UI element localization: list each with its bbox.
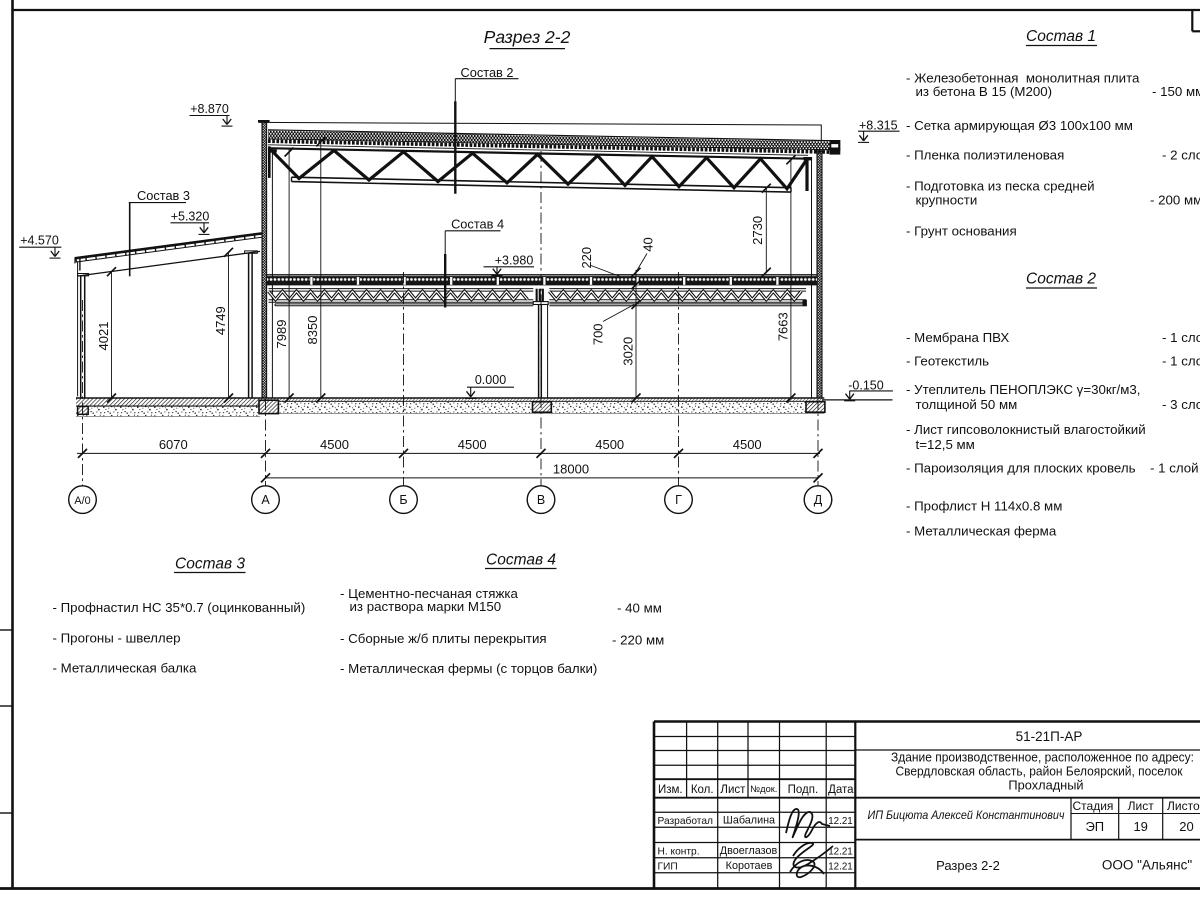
svg-text:Лист: Лист [1128, 799, 1155, 813]
svg-text:- Железобетонная монолитная п: - Железобетонная монолитная плита [906, 70, 1140, 85]
svg-text:Свердловская область, район Бе: Свердловская область, район Белоярский, … [896, 764, 1183, 779]
svg-text:- Металлическая ферма: - Металлическая ферма [906, 524, 1057, 539]
svg-text:Н. контр.: Н. контр. [658, 847, 700, 858]
svg-text:- Пароизоляция для плоских кро: - Пароизоляция для плоских кровель [906, 461, 1136, 476]
svg-text:Состав 2: Состав 2 [1026, 271, 1096, 288]
svg-text:- Сборные ж/б плиты перекрытия: - Сборные ж/б плиты перекрытия [340, 631, 547, 646]
svg-text:Состав 1: Состав 1 [1026, 28, 1096, 45]
svg-text:- Металлическая балка: - Металлическая балка [53, 661, 198, 676]
svg-text:Коротаев: Коротаев [726, 860, 773, 872]
svg-text:+3.980: +3.980 [495, 253, 534, 267]
svg-text:4500: 4500 [595, 437, 624, 452]
svg-text:Прохладный: Прохладный [1008, 778, 1083, 793]
svg-text:А: А [261, 493, 270, 507]
svg-text:А/0: А/0 [74, 495, 90, 507]
svg-text:Двоеглазов: Двоеглазов [720, 845, 778, 857]
svg-text:- Грунт основания: - Грунт основания [906, 224, 1017, 239]
svg-text:Состав 2: Состав 2 [460, 65, 513, 80]
svg-text:- Пленка полиэтиленовая: - Пленка полиэтиленовая [906, 148, 1064, 163]
svg-text:- 1 слой: - 1 слой [1162, 354, 1200, 369]
svg-text:4500: 4500 [320, 437, 349, 452]
svg-text:Б: Б [399, 493, 407, 507]
svg-text:12.21: 12.21 [828, 847, 853, 858]
svg-text:Разрез 2-2: Разрез 2-2 [936, 858, 1000, 873]
svg-text:+5.320: +5.320 [171, 210, 210, 224]
svg-text:Стадия: Стадия [1073, 799, 1114, 813]
svg-text:Лист: Лист [720, 784, 746, 796]
svg-text:ИП Бицюта Алексей Константинов: ИП Бицюта Алексей Константинович [868, 808, 1065, 822]
svg-text:40: 40 [641, 237, 656, 251]
svg-text:Здание производственное, распо: Здание производственное, расположенное п… [891, 750, 1194, 765]
svg-text:- 220 мм: - 220 мм [612, 633, 664, 648]
svg-text:12.21: 12.21 [828, 862, 853, 873]
svg-text:В: В [537, 493, 545, 507]
svg-text:толщиной 50 мм: толщиной 50 мм [916, 397, 1018, 412]
svg-text:ООО "Альянс": ООО "Альянс" [1102, 858, 1192, 873]
svg-text:- 150 мм: - 150 мм [1152, 84, 1200, 99]
svg-text:- Подготовка из песка средней: - Подготовка из песка средней [906, 179, 1095, 194]
svg-text:- Лист гипсоволокнистый влагос: - Лист гипсоволокнистый влагостойкий [906, 422, 1146, 437]
svg-text:3020: 3020 [621, 337, 636, 366]
svg-text:700: 700 [591, 323, 606, 345]
svg-text:ЭП: ЭП [1085, 819, 1104, 834]
svg-text:220: 220 [579, 247, 594, 269]
svg-text:Разрез 2-2: Разрез 2-2 [484, 27, 571, 47]
svg-text:- Профлист Н 114х0.8 мм: - Профлист Н 114х0.8 мм [906, 499, 1062, 514]
svg-text:7989: 7989 [274, 320, 289, 349]
svg-text:Состав 3: Состав 3 [175, 556, 245, 573]
svg-text:+8.315: +8.315 [859, 118, 898, 132]
svg-text:8350: 8350 [305, 316, 320, 345]
svg-text:- 1 слой: - 1 слой [1150, 461, 1199, 476]
svg-text:- Металлическая фермы (с торцо: - Металлическая фермы (с торцов балки) [340, 661, 597, 676]
svg-text:4021: 4021 [96, 322, 111, 351]
svg-text:7663: 7663 [775, 312, 790, 341]
svg-text:-0.150: -0.150 [848, 378, 883, 392]
svg-text:из бетона В 15 (М200): из бетона В 15 (М200) [916, 84, 1053, 99]
svg-text:19: 19 [1133, 819, 1147, 834]
svg-text:+4.570: +4.570 [20, 234, 59, 248]
svg-text:- Утеплитель ПЕНОПЛЭКС γ=30кг/: - Утеплитель ПЕНОПЛЭКС γ=30кг/м3, [906, 382, 1140, 397]
svg-text:- 2 слоя: - 2 слоя [1162, 148, 1200, 163]
svg-text:- 3 слоя: - 3 слоя [1162, 397, 1200, 412]
svg-text:ГИП: ГИП [658, 862, 678, 873]
svg-text:Д: Д [814, 493, 823, 507]
svg-text:Состав 4: Состав 4 [486, 552, 556, 569]
svg-text:- Геотекстиль: - Геотекстиль [906, 354, 989, 369]
svg-text:Листов: Листов [1167, 799, 1200, 813]
svg-text:Дата: Дата [828, 784, 854, 796]
svg-text:Изм.: Изм. [658, 784, 683, 796]
svg-text:Шабалина: Шабалина [723, 815, 775, 827]
svg-text:Г: Г [675, 493, 682, 507]
svg-text:2730: 2730 [750, 216, 765, 245]
svg-text:Подп.: Подп. [788, 784, 819, 796]
svg-text:t=12,5 мм: t=12,5 мм [916, 437, 975, 452]
svg-text:из раствора марки М150: из раствора марки М150 [350, 599, 502, 614]
svg-text:- 200 мм: - 200 мм [1150, 193, 1200, 208]
svg-text:18000: 18000 [553, 462, 589, 477]
svg-text:- Профнастил НС 35*0.7 (оцинко: - Профнастил НС 35*0.7 (оцинкованный) [53, 600, 306, 615]
svg-text:6070: 6070 [159, 437, 188, 452]
svg-text:Состав 4: Состав 4 [451, 216, 504, 231]
svg-text:12.21: 12.21 [828, 816, 853, 827]
svg-text:- 1 слой: - 1 слой [1162, 330, 1200, 345]
svg-text:Кол.: Кол. [691, 784, 714, 796]
svg-text:- 40 мм: - 40 мм [617, 601, 662, 616]
svg-text:4500: 4500 [458, 437, 487, 452]
svg-text:№док.: №док. [750, 784, 777, 794]
svg-text:4749: 4749 [213, 306, 228, 335]
svg-text:- Мембрана ПВХ: - Мембрана ПВХ [906, 330, 1009, 345]
svg-text:крупности: крупности [916, 193, 978, 208]
svg-text:20: 20 [1179, 819, 1193, 834]
svg-text:51-21П-АР: 51-21П-АР [1016, 729, 1083, 744]
svg-text:+8.870: +8.870 [190, 102, 229, 116]
svg-text:Состав 3: Состав 3 [137, 188, 190, 203]
svg-text:Разработал: Разработал [658, 815, 714, 827]
svg-text:4500: 4500 [733, 437, 762, 452]
svg-text:0.000: 0.000 [475, 373, 506, 387]
svg-text:- Сетка армирующая Ø3 100х100: - Сетка армирующая Ø3 100х100 мм [906, 118, 1133, 133]
svg-text:- Прогоны - швеллер: - Прогоны - швеллер [53, 631, 181, 646]
